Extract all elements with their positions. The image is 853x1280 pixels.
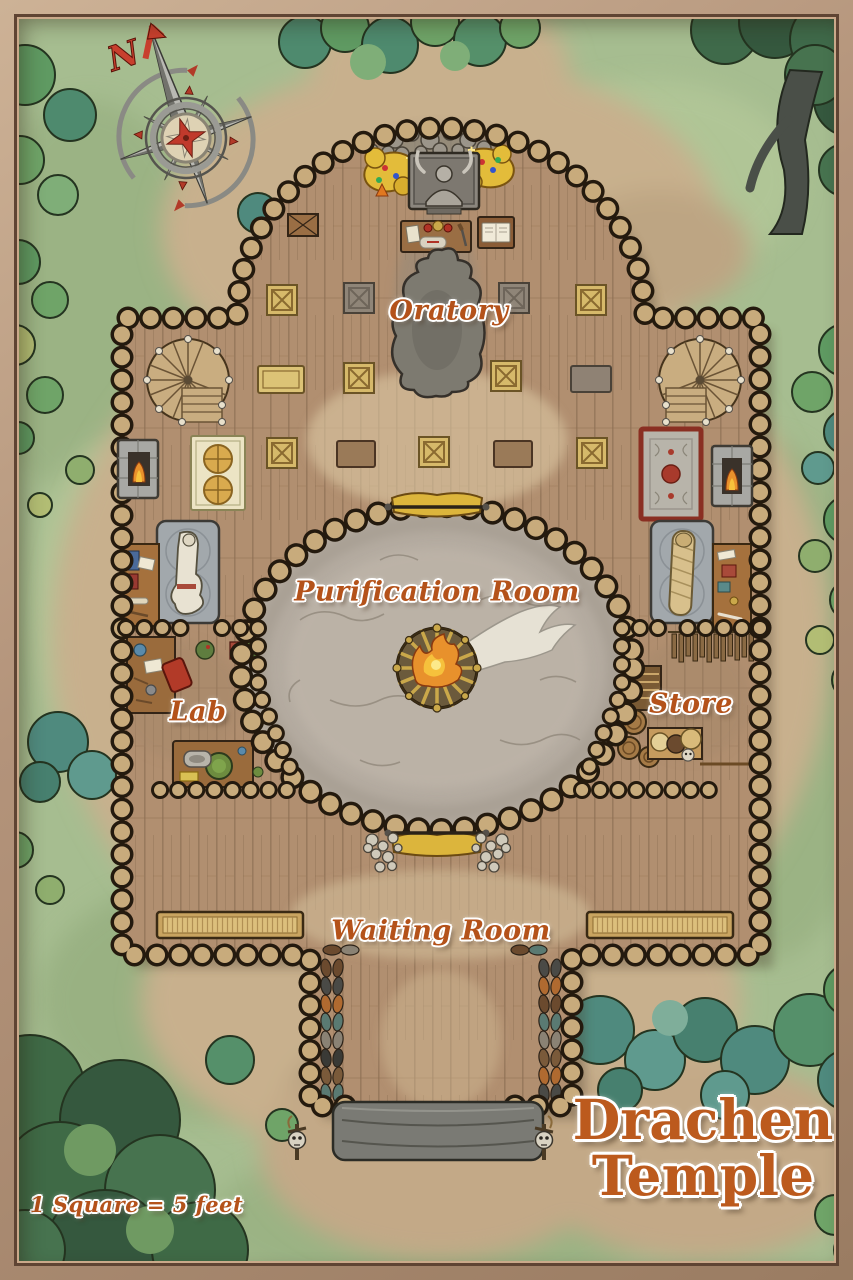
fireplace-right bbox=[712, 446, 752, 506]
side-table bbox=[713, 544, 751, 630]
room-label-purification: Purification Room bbox=[294, 577, 580, 608]
fireplace-left bbox=[118, 440, 158, 498]
lectern-with-book bbox=[478, 217, 514, 248]
room-label-oratory: Oratory bbox=[389, 296, 508, 327]
ritual-table bbox=[401, 221, 471, 252]
map-title-line1: Drachen bbox=[563, 1092, 843, 1148]
corpse-slab bbox=[157, 521, 219, 623]
red-rug bbox=[641, 429, 701, 519]
spiral-staircase-right bbox=[656, 336, 745, 426]
golden-curtain-top bbox=[385, 493, 490, 516]
room-label-lab: Lab bbox=[170, 697, 227, 728]
room-label-waiting: Waiting Room bbox=[331, 916, 550, 947]
scale-note: 1 Square = 5 feet bbox=[30, 1192, 243, 1217]
demon-altar bbox=[409, 152, 479, 214]
map-title-line2: Temple bbox=[563, 1148, 843, 1204]
map-page: N Oratory Purification Room Lab Store Wa… bbox=[0, 0, 853, 1280]
waiting-bench-right bbox=[587, 912, 733, 938]
mummy-slab bbox=[651, 521, 713, 623]
entrance-steps bbox=[333, 1102, 543, 1160]
room-label-store: Store bbox=[649, 689, 733, 720]
prayer-rug bbox=[191, 436, 245, 510]
spiral-staircase-left bbox=[144, 336, 233, 426]
map-title: Drachen Temple bbox=[563, 1092, 843, 1204]
crate bbox=[288, 214, 318, 236]
waiting-bench-left bbox=[157, 912, 303, 938]
